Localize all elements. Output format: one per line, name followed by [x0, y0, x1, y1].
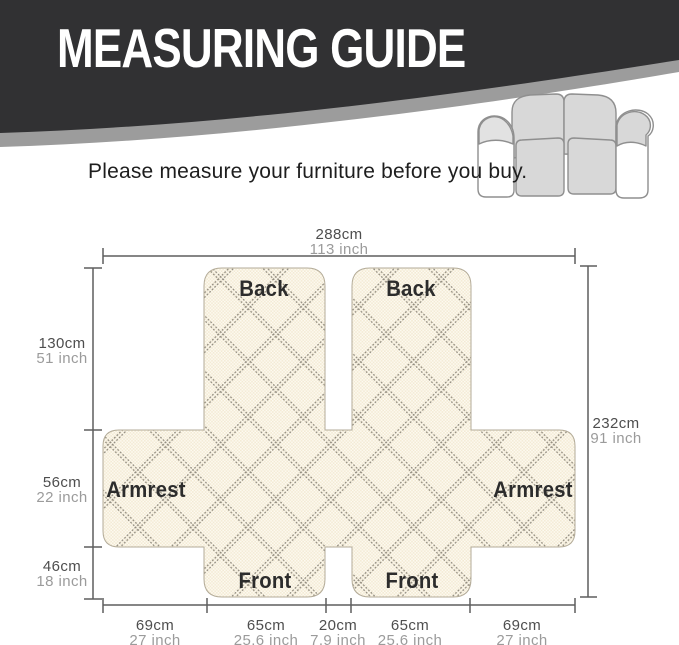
- measure-inch-value: 25.6 inch: [234, 634, 298, 645]
- measure-inch-value: 27 inch: [129, 634, 180, 645]
- cover-fabric-quilt-pattern: [103, 268, 575, 597]
- label-front-right: Front: [385, 568, 438, 594]
- measure-bottom-center-gap: 20cm 7.9 inch: [310, 619, 366, 645]
- label-front-left: Front: [238, 568, 291, 594]
- measure-inch-value: 113 inch: [310, 243, 369, 258]
- measure-top-width: 288cm 113 inch: [310, 228, 369, 257]
- measure-inch-value: 27 inch: [496, 634, 547, 645]
- label-armrest-right: Armrest: [493, 477, 573, 503]
- measure-bottom-armrest-right: 69cm 27 inch: [496, 619, 547, 645]
- measure-back-height: 130cm 51 inch: [36, 337, 87, 366]
- measure-armrest-height: 56cm 22 inch: [36, 476, 87, 505]
- label-back-left: Back: [239, 276, 288, 302]
- measure-bottom-seat-right: 65cm 25.6 inch: [378, 619, 442, 645]
- measure-inch-value: 7.9 inch: [310, 634, 366, 645]
- cover-shape: [103, 268, 575, 597]
- dimension-line-left: [84, 268, 102, 599]
- measure-inch-value: 25.6 inch: [378, 634, 442, 645]
- measure-inch-value: 18 inch: [36, 575, 87, 590]
- measuring-guide-page: MEASURING GUIDE Please measure your furn…: [0, 0, 679, 645]
- cover-diagram: [0, 0, 679, 645]
- measure-inch-value: 22 inch: [36, 491, 87, 506]
- label-armrest-left: Armrest: [106, 477, 186, 503]
- measure-front-height: 46cm 18 inch: [36, 560, 87, 589]
- measure-inch-value: 91 inch: [590, 432, 641, 447]
- dimension-line-bottom: [103, 598, 575, 613]
- measure-inch-value: 51 inch: [36, 352, 87, 367]
- label-back-right: Back: [386, 276, 435, 302]
- measure-total-height: 232cm 91 inch: [590, 417, 641, 446]
- measure-bottom-armrest-left: 69cm 27 inch: [129, 619, 180, 645]
- measure-bottom-seat-left: 65cm 25.6 inch: [234, 619, 298, 645]
